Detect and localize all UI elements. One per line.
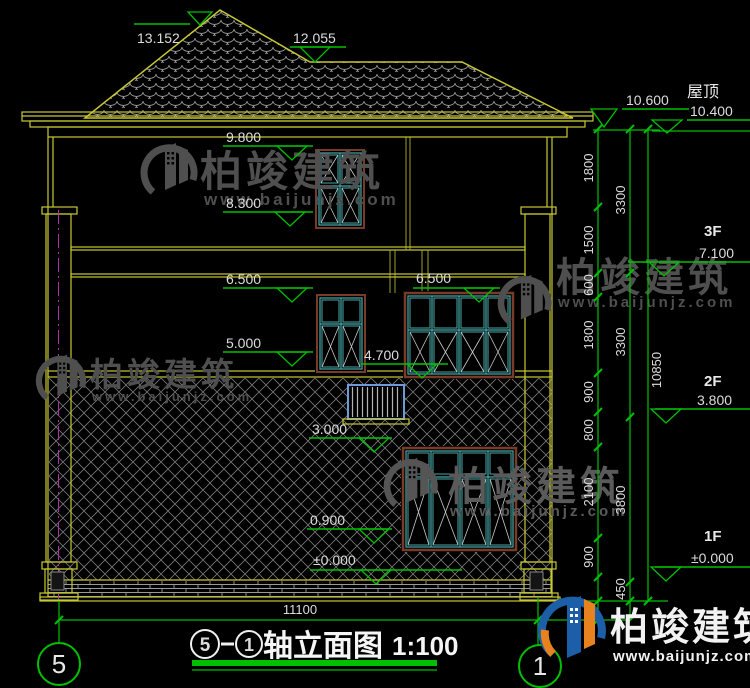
dim-value: 3800 bbox=[613, 486, 628, 515]
level-value: 3.000 bbox=[312, 421, 347, 437]
level-value: 10.600 bbox=[626, 92, 669, 108]
brand-name: 柏竣建筑 bbox=[610, 607, 750, 649]
title-axis-number: 1 bbox=[244, 635, 254, 655]
level-value: 13.152 bbox=[137, 30, 180, 46]
level-value: ±0.000 bbox=[313, 552, 356, 568]
dim-value: 600 bbox=[581, 274, 596, 296]
dim-total: 10850 bbox=[649, 352, 664, 388]
level-value: 4.700 bbox=[364, 347, 399, 363]
floor-label: 2F bbox=[704, 373, 722, 390]
dim-value: 900 bbox=[581, 546, 596, 568]
dim-value: 1800 bbox=[581, 154, 596, 183]
level-value: 8.300 bbox=[226, 195, 261, 211]
level-value: 7.100 bbox=[699, 245, 734, 261]
flag-1f: 1F ±0.000 bbox=[651, 528, 750, 581]
eave-fascia bbox=[22, 112, 593, 137]
dim-value: 900 bbox=[581, 381, 596, 403]
window-2f-left bbox=[315, 293, 367, 374]
roof-tile-surface bbox=[85, 10, 573, 118]
axis-number: 1 bbox=[533, 651, 547, 681]
level-value: 10.400 bbox=[690, 103, 733, 119]
dim-value: 1500 bbox=[581, 226, 596, 255]
brand-url: www.baijunjz.com bbox=[612, 648, 750, 665]
watermark-right: 柏竣建筑 www.baijunjz.com bbox=[501, 256, 735, 321]
level-value: 12.055 bbox=[293, 30, 336, 46]
dim-value: 800 bbox=[581, 419, 596, 441]
plinth-brick-band bbox=[48, 581, 552, 597]
watermark-brand: 柏竣建筑 bbox=[90, 356, 238, 393]
level-value: 9.800 bbox=[226, 129, 261, 145]
floor-label: 1F bbox=[704, 528, 722, 545]
balcony-railing bbox=[343, 385, 409, 424]
dim-value: 3300 bbox=[613, 186, 628, 215]
roof bbox=[85, 10, 573, 118]
floor-slab-3f bbox=[71, 247, 525, 250]
elevation-canvas: 柏竣建筑 www.baijunjz.com 柏竣建筑 www.baijunjz.… bbox=[0, 0, 750, 688]
flag-10600: 10.600 bbox=[591, 92, 689, 127]
axis-number: 5 bbox=[52, 649, 66, 679]
watermark-url: www.baijunjz.com bbox=[449, 503, 627, 520]
ground-sill bbox=[40, 597, 560, 601]
title-axis-number: 5 bbox=[200, 635, 211, 656]
title-underline-thick bbox=[192, 660, 437, 666]
level-value: 6.500 bbox=[226, 271, 261, 287]
column-capital bbox=[521, 207, 556, 214]
level-value: ±0.000 bbox=[691, 550, 734, 566]
dim-value: 1800 bbox=[581, 321, 596, 350]
watermark-top: 柏竣建筑 www.baijunjz.com bbox=[144, 143, 399, 209]
drawing-title: 5 1 轴立面图 1:100 bbox=[191, 629, 459, 670]
level-value: 6.500 bbox=[416, 270, 451, 286]
brand-logo: 柏竣建筑 www.baijunjz.com bbox=[542, 596, 750, 665]
level-value: 5.000 bbox=[226, 335, 261, 351]
watermark-logo-icon bbox=[144, 143, 194, 192]
flag-2f: 2F 3.800 bbox=[651, 373, 750, 423]
dim-value: 3300 bbox=[613, 328, 628, 357]
column-capital bbox=[42, 207, 77, 214]
floor-label: 3F bbox=[704, 223, 722, 240]
dim-value: 450 bbox=[613, 578, 628, 600]
marker-6500-left: 6.500 bbox=[223, 271, 313, 302]
roof-label: 屋顶 bbox=[687, 83, 719, 101]
title-scale: 1:100 bbox=[392, 631, 459, 661]
brand-logo-icon bbox=[542, 596, 602, 658]
base-panel bbox=[51, 572, 64, 590]
beam-line-3f bbox=[71, 274, 525, 277]
level-value: 0.900 bbox=[310, 512, 345, 528]
level-value: 3.800 bbox=[697, 392, 732, 408]
cad-elevation-drawing: 柏竣建筑 www.baijunjz.com 柏竣建筑 www.baijunjz.… bbox=[0, 0, 750, 688]
overall-width-dim: 11100 bbox=[283, 602, 317, 617]
watermark-url: www.baijunjz.com bbox=[91, 389, 252, 404]
base-panel bbox=[530, 572, 543, 590]
dim-value: 2100 bbox=[581, 478, 596, 507]
title-text: 轴立面图 bbox=[263, 629, 383, 663]
watermark-brand: 柏竣建筑 bbox=[200, 148, 384, 195]
